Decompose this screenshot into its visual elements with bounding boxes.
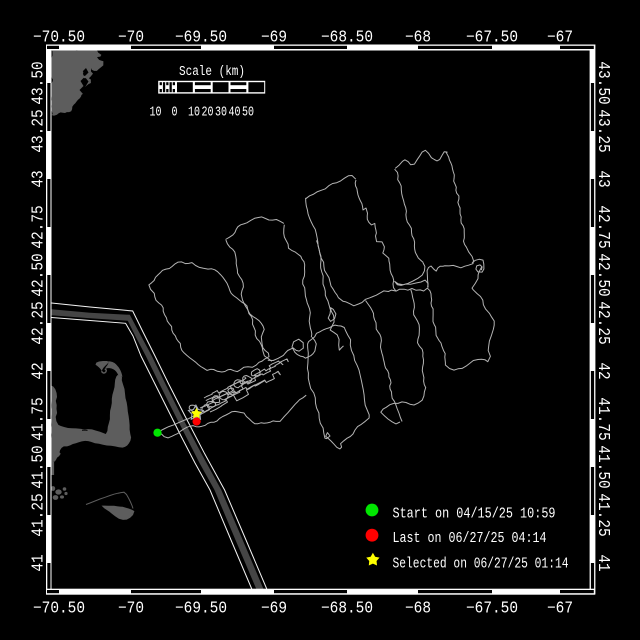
svg-text:41.75: 41.75: [594, 397, 612, 440]
svg-text:41.50: 41.50: [594, 445, 612, 488]
svg-text:−70: −70: [118, 600, 144, 618]
svg-text:41: 41: [30, 554, 48, 571]
svg-text:10: 10: [188, 105, 200, 121]
svg-text:43: 43: [30, 170, 48, 187]
svg-text:−69.50: −69.50: [175, 600, 227, 618]
svg-text:41.75: 41.75: [30, 397, 48, 440]
svg-text:43.25: 43.25: [594, 109, 612, 152]
svg-text:41.25: 41.25: [594, 493, 612, 536]
svg-text:42.50: 42.50: [30, 253, 48, 296]
svg-text:42.75: 42.75: [30, 205, 48, 248]
svg-text:42.25: 42.25: [30, 301, 48, 344]
svg-text:Scale (km): Scale (km): [179, 64, 245, 80]
svg-text:41.50: 41.50: [30, 445, 48, 488]
svg-text:43.25: 43.25: [30, 109, 48, 152]
svg-text:−67.50: −67.50: [466, 29, 518, 47]
svg-text:42.75: 42.75: [594, 205, 612, 248]
svg-text:10: 10: [150, 105, 162, 121]
svg-text:0: 0: [172, 105, 178, 121]
svg-text:−68: −68: [405, 600, 431, 618]
svg-text:50: 50: [242, 105, 254, 121]
svg-text:Last on 06/27/25 04:14: Last on 06/27/25 04:14: [393, 531, 547, 547]
svg-text:−70.50: −70.50: [33, 29, 85, 47]
svg-text:−67: −67: [547, 600, 573, 618]
svg-text:−70.50: −70.50: [33, 600, 85, 618]
svg-text:−68: −68: [405, 29, 431, 47]
svg-text:20: 20: [202, 105, 214, 121]
svg-text:43.50: 43.50: [30, 61, 48, 104]
svg-text:42: 42: [30, 362, 48, 379]
svg-text:41: 41: [594, 554, 612, 571]
svg-text:−68.50: −68.50: [321, 29, 373, 47]
svg-text:40: 40: [229, 105, 241, 121]
svg-text:30: 30: [215, 105, 227, 121]
svg-text:−67.50: −67.50: [466, 600, 518, 618]
svg-text:−68.50: −68.50: [321, 600, 373, 618]
svg-text:43: 43: [594, 170, 612, 187]
svg-text:42.25: 42.25: [594, 301, 612, 344]
svg-text:Selected on 06/27/25 01:14: Selected on 06/27/25 01:14: [393, 556, 569, 572]
svg-text:−69: −69: [261, 600, 287, 618]
svg-text:Start on 04/15/25 10:59: Start on 04/15/25 10:59: [393, 506, 556, 522]
svg-text:−67: −67: [547, 29, 573, 47]
svg-text:42.50: 42.50: [594, 253, 612, 296]
svg-text:42: 42: [594, 362, 612, 379]
svg-text:41.25: 41.25: [30, 493, 48, 536]
svg-text:−69.50: −69.50: [175, 29, 227, 47]
svg-text:−69: −69: [261, 29, 287, 47]
svg-text:−70: −70: [118, 29, 144, 47]
svg-text:43.50: 43.50: [594, 61, 612, 104]
